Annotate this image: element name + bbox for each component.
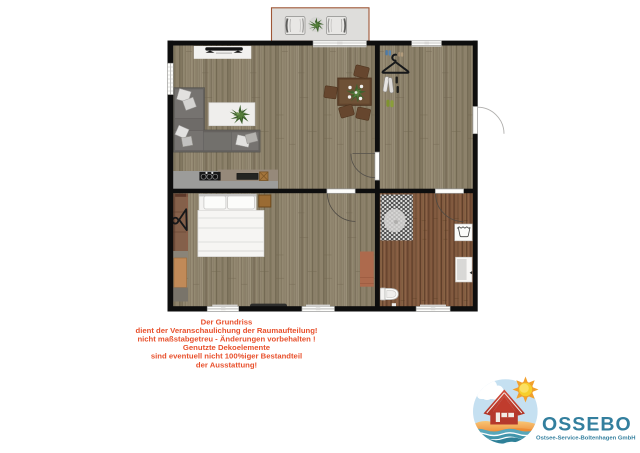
svg-text:der Ausstattung!: der Ausstattung!: [196, 360, 257, 369]
svg-text:Ostsee-Service-Boltenhagen Gmb: Ostsee-Service-Boltenhagen GmbH: [536, 435, 636, 441]
svg-text:OSSEBO: OSSEBO: [542, 414, 632, 436]
